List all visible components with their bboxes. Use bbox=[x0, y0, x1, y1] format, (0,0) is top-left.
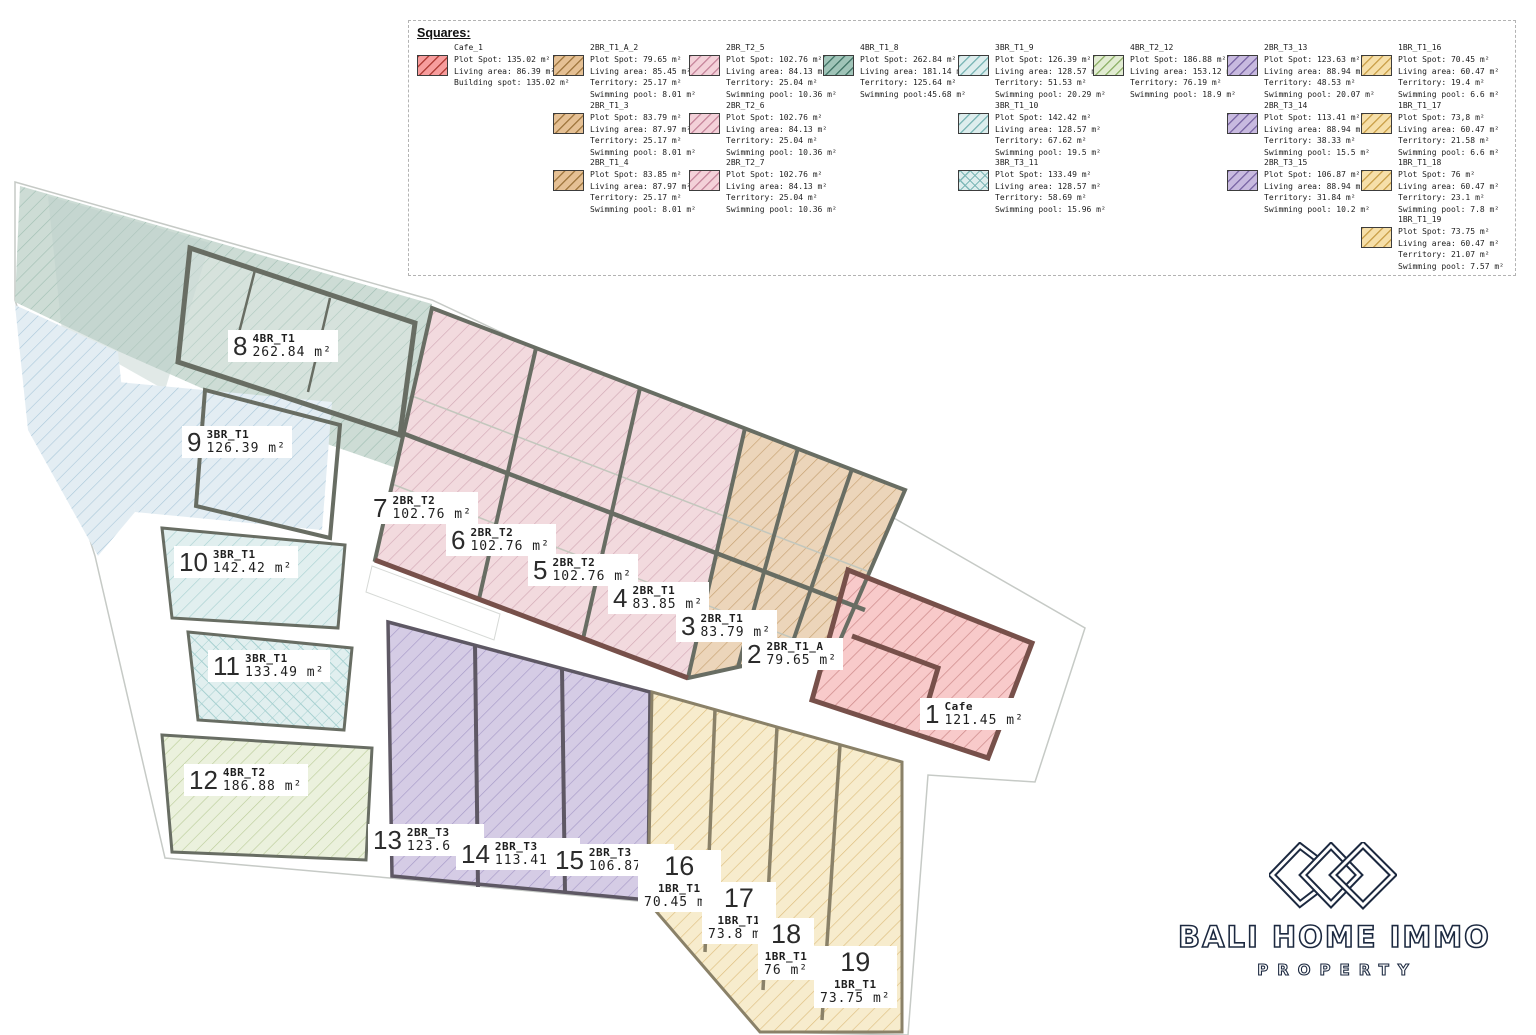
master-plan-page: Squares: Cafe_1 Plot Spot: 135.02 m² Liv… bbox=[0, 0, 1536, 1035]
diamonds-logo-icon bbox=[1269, 842, 1397, 912]
legend-swatch-2br-t2-icon bbox=[689, 170, 720, 191]
legend-item-2br-t2-5: 2BR_T2_5 Plot Spot: 102.76 m² Living are… bbox=[689, 42, 825, 100]
legend-swatch-2br-t2-icon bbox=[689, 113, 720, 134]
unit-label-10: 10 3BR_T1 142.42 m² bbox=[174, 546, 298, 578]
unit-label-12: 12 4BR_T2 186.88 m² bbox=[184, 764, 308, 796]
legend-swatch-1br-t1-icon bbox=[1361, 55, 1392, 76]
unit-label-8: 8 4BR_T1 262.84 m² bbox=[228, 330, 338, 362]
legend-swatch-2br-t2-icon bbox=[689, 55, 720, 76]
legend-item-2br-t2-6: 2BR_T2_6 Plot Spot: 102.76 m² Living are… bbox=[689, 100, 825, 158]
legend-item-2br-t3-15: 2BR_T3_15 Plot Spot: 106.87 m² Living ar… bbox=[1227, 157, 1363, 215]
legend-swatch-4br-t2-icon bbox=[1093, 55, 1124, 76]
legend-item-2br-t1-a-2: 2BR_T1_A_2 Plot Spot: 79.65 m² Living ar… bbox=[553, 42, 689, 100]
legend-item-4br-t1-8: 4BR_T1_8 Plot Spot: 262.84 m² Living are… bbox=[823, 42, 959, 100]
legend-item-3br-t1-10: 3BR_T1_10 Plot Spot: 142.42 m² Living ar… bbox=[958, 100, 1094, 158]
legend-swatch-2br-t1-icon bbox=[553, 170, 584, 191]
unit-label-19: 19 1BR_T1 73.75 m² bbox=[814, 946, 897, 1008]
legend-swatch-2br-t1-icon bbox=[553, 113, 584, 134]
legend: Squares: Cafe_1 Plot Spot: 135.02 m² Liv… bbox=[408, 20, 1516, 276]
legend-item-2br-t3-13: 2BR_T3_13 Plot Spot: 123.63 m² Living ar… bbox=[1227, 42, 1363, 100]
legend-swatch-2br-t1-icon bbox=[553, 55, 584, 76]
legend-swatch-3br-t3-icon bbox=[958, 170, 989, 191]
legend-swatch-1br-t1-icon bbox=[1361, 113, 1392, 134]
unit-label-9: 9 3BR_T1 126.39 m² bbox=[182, 426, 292, 458]
legend-swatch-4br-t1-icon bbox=[823, 55, 854, 76]
legend-item-4br-t2-12: 4BR_T2_12 Plot Spot: 186.88 m² Living ar… bbox=[1093, 42, 1229, 100]
legend-item-1br-t1-17: 1BR_T1_17 Plot Spot: 73,8 m² Living area… bbox=[1361, 100, 1497, 158]
unit-label-6: 6 2BR_T2 102.76 m² bbox=[446, 524, 556, 556]
legend-swatch-cafe-icon bbox=[417, 55, 448, 76]
unit-label-5: 5 2BR_T2 102.76 m² bbox=[528, 554, 638, 586]
legend-swatch-1br-t1-icon bbox=[1361, 227, 1392, 248]
legend-item-2br-t2-7: 2BR_T2_7 Plot Spot: 102.76 m² Living are… bbox=[689, 157, 825, 215]
legend-item-3br-t1-9: 3BR_T1_9 Plot Spot: 126.39 m² Living are… bbox=[958, 42, 1094, 100]
brand-logo: BALI HOME IMMO PROPERTY bbox=[1178, 842, 1488, 1012]
legend-swatch-3br-t1-icon bbox=[958, 113, 989, 134]
unit-label-7: 7 2BR_T2 102.76 m² bbox=[368, 492, 478, 524]
legend-swatch-2br-t3-icon bbox=[1227, 55, 1258, 76]
brand-tagline: PROPERTY bbox=[1178, 961, 1488, 979]
legend-item-2br-t3-14: 2BR_T3_14 Plot Spot: 113.41 m² Living ar… bbox=[1227, 100, 1363, 158]
unit-label-3: 3 2BR_T1 83.79 m² bbox=[676, 610, 777, 642]
legend-swatch-1br-t1-icon bbox=[1361, 170, 1392, 191]
legend-item-2br-t1-4: 2BR_T1_4 Plot Spot: 83.85 m² Living area… bbox=[553, 157, 689, 215]
unit-label-4: 4 2BR_T1 83.85 m² bbox=[608, 582, 709, 614]
unit-label-11: 11 3BR_T1 133.49 m² bbox=[208, 650, 330, 682]
unit-label-18: 18 1BR_T1 76 m² bbox=[758, 918, 814, 980]
legend-item-1br-t1-16: 1BR_T1_16 Plot Spot: 70.45 m² Living are… bbox=[1361, 42, 1497, 100]
legend-item-2br-t1-3: 2BR_T1_3 Plot Spot: 83.79 m² Living area… bbox=[553, 100, 689, 158]
legend-item-cafe-1: Cafe_1 Plot Spot: 135.02 m² Living area:… bbox=[417, 42, 553, 89]
legend-item-3br-t3-11: 3BR_T3_11 Plot Spot: 133.49 m² Living ar… bbox=[958, 157, 1094, 215]
unit-label-1: 1 Cafe 121.45 m² bbox=[920, 698, 1030, 730]
legend-swatch-3br-t1-icon bbox=[958, 55, 989, 76]
legend-swatch-2br-t3-icon bbox=[1227, 113, 1258, 134]
legend-item-1br-t1-18: 1BR_T1_18 Plot Spot: 76 m² Living area: … bbox=[1361, 157, 1497, 215]
brand-name: BALI HOME IMMO bbox=[1178, 920, 1488, 954]
unit-label-2: 2 2BR_T1_A 79.65 m² bbox=[742, 638, 843, 670]
legend-swatch-2br-t3-icon bbox=[1227, 170, 1258, 191]
legend-item-1br-t1-19: 1BR_T1_19 Plot Spot: 73.75 m² Living are… bbox=[1361, 214, 1497, 272]
legend-title: Squares: bbox=[417, 26, 471, 40]
parcel-unit-12 bbox=[162, 735, 372, 860]
